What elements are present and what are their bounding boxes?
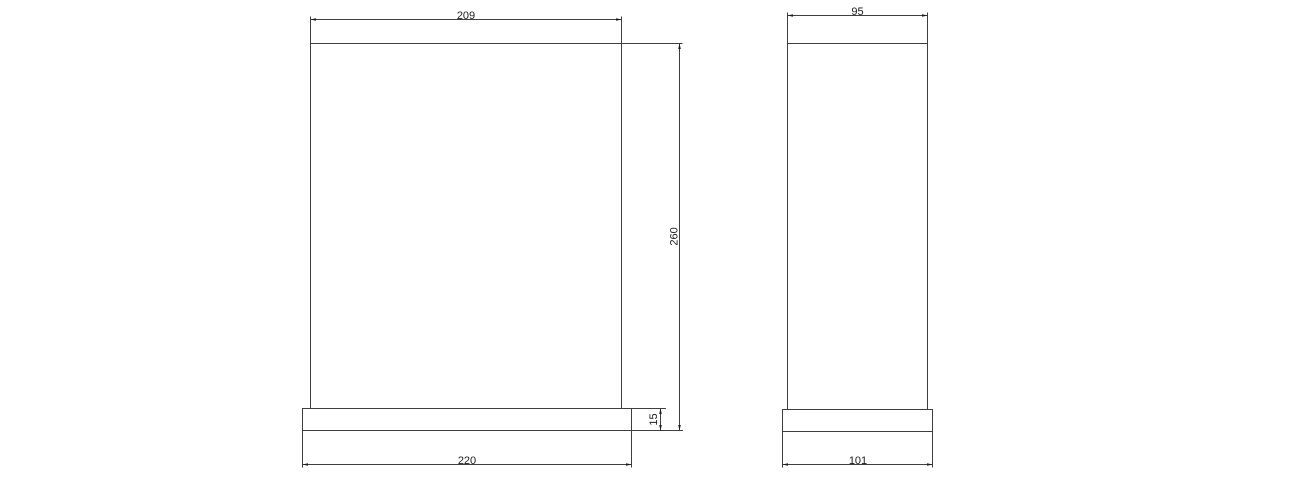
svg-text:209: 209	[457, 10, 475, 22]
svg-text:95: 95	[851, 6, 863, 18]
svg-text:101: 101	[849, 455, 867, 467]
svg-text:260: 260	[669, 227, 681, 245]
svg-text:15: 15	[648, 413, 660, 425]
svg-text:220: 220	[458, 455, 476, 467]
